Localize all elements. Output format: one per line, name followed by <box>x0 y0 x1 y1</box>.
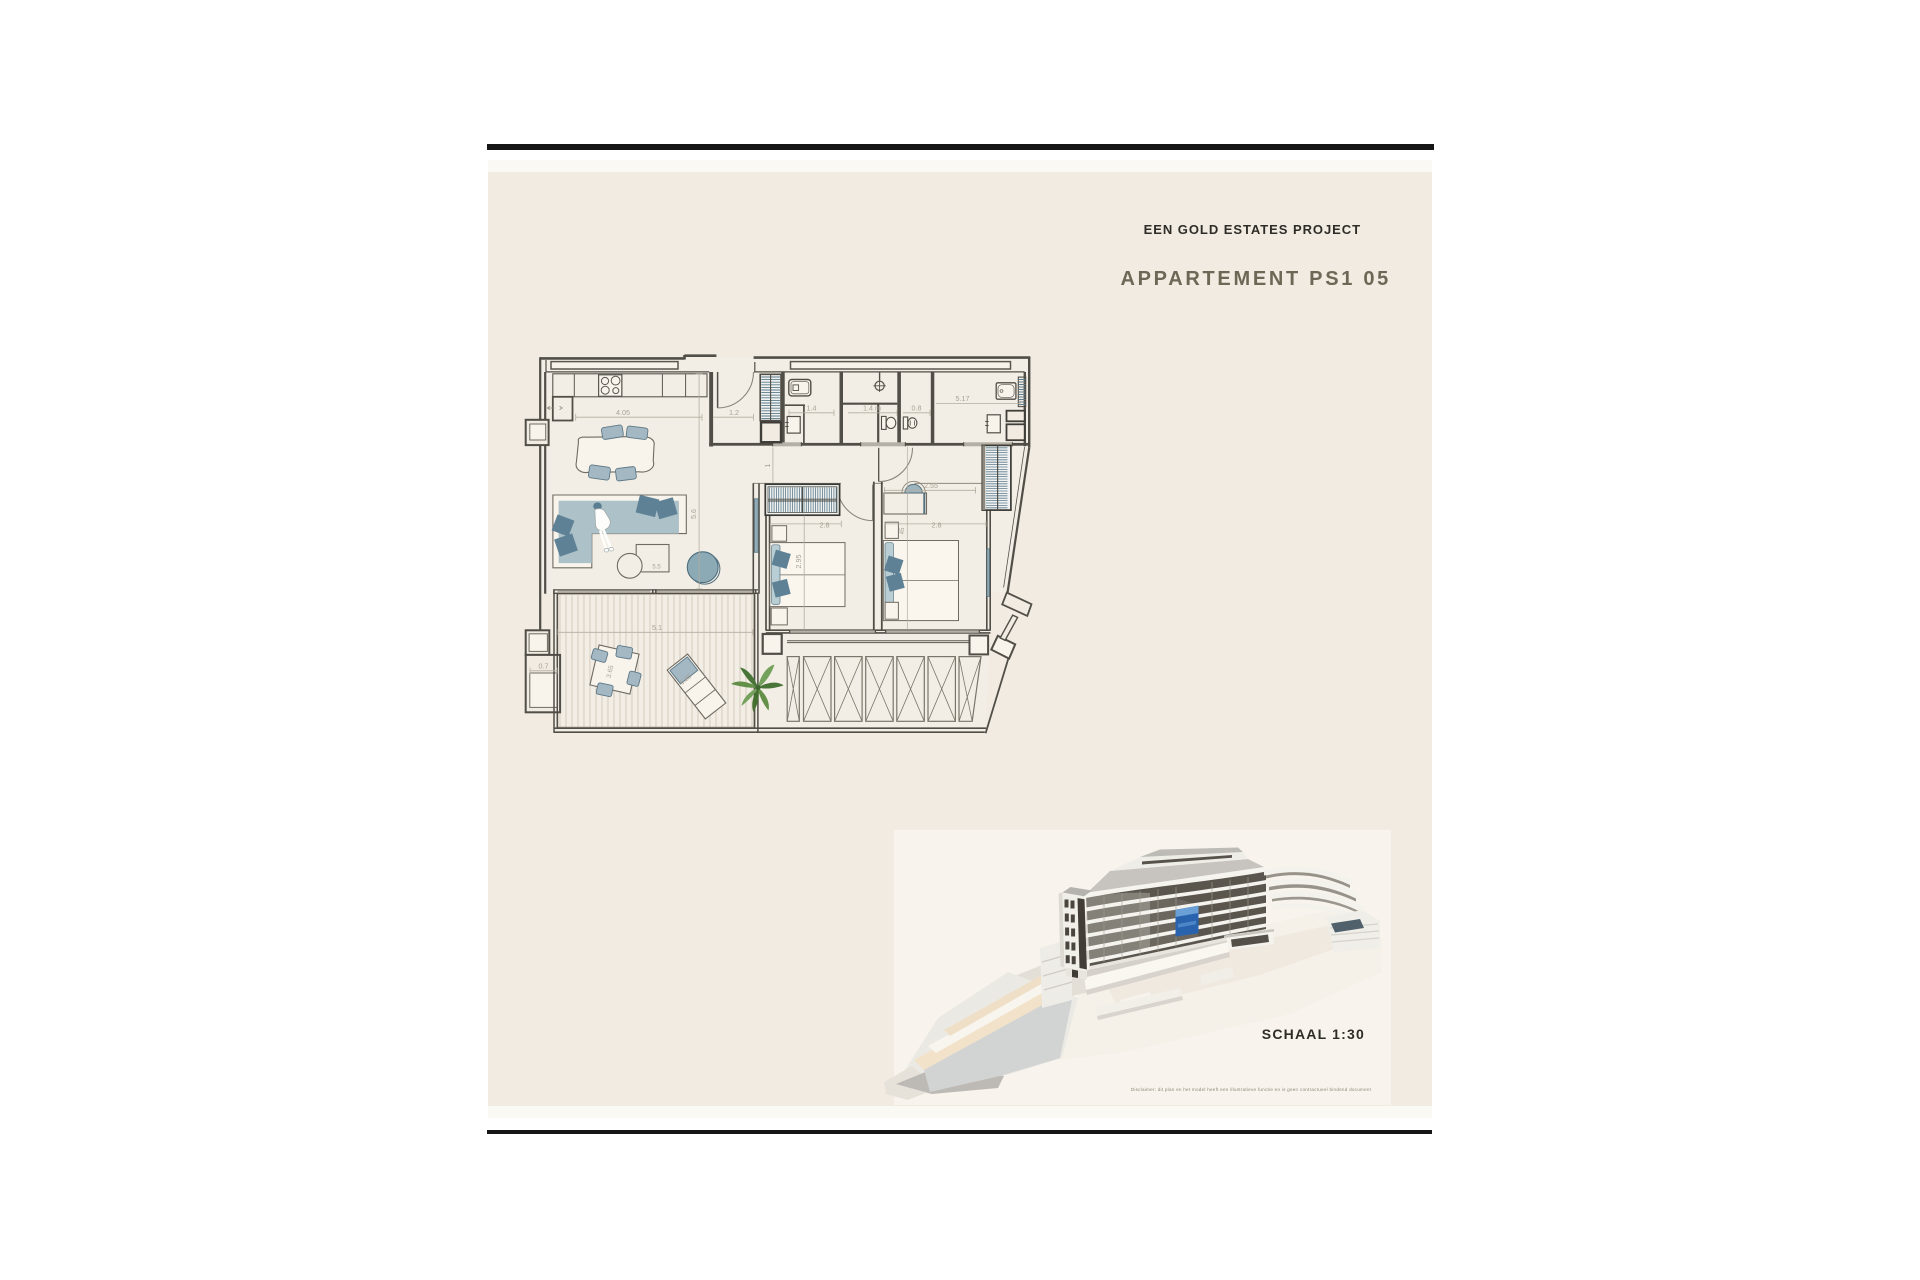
svg-text:0.7: 0.7 <box>539 661 549 670</box>
svg-text:2.95: 2.95 <box>794 555 803 569</box>
svg-text:1: 1 <box>763 464 772 468</box>
svg-text:45: 45 <box>900 527 906 534</box>
svg-text:1.4: 1.4 <box>807 404 817 413</box>
svg-text:2.55: 2.55 <box>924 481 938 490</box>
svg-text:5.6: 5.6 <box>689 509 698 519</box>
svg-text:5.1: 5.1 <box>652 623 662 632</box>
svg-text:5.5: 5.5 <box>652 565 661 571</box>
svg-text:4.05: 4.05 <box>616 408 630 417</box>
svg-text:2.8: 2.8 <box>820 520 830 529</box>
svg-text:1.4 m: 1.4 m <box>863 404 881 413</box>
svg-text:2.8: 2.8 <box>932 520 942 529</box>
svg-text:1.2: 1.2 <box>729 408 739 417</box>
svg-text:0.8: 0.8 <box>912 404 922 413</box>
svg-text:5.17: 5.17 <box>956 394 970 403</box>
